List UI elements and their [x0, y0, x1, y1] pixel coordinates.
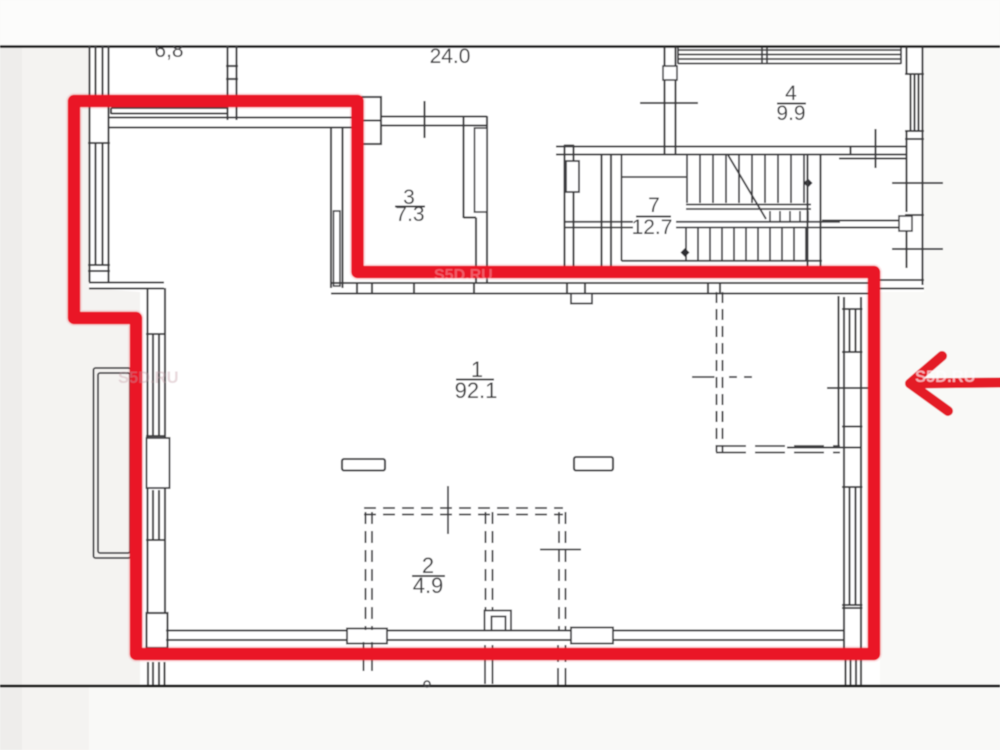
svg-text:4.9: 4.9	[413, 573, 444, 598]
svg-text:9.9: 9.9	[776, 102, 805, 125]
svg-text:7.3: 7.3	[395, 203, 424, 226]
svg-text:S5D.RU: S5D.RU	[915, 368, 976, 386]
svg-text:7: 7	[648, 194, 660, 217]
svg-text:S5D.RU: S5D.RU	[434, 267, 493, 284]
svg-text:24.0: 24.0	[430, 45, 471, 68]
svg-text:12.7: 12.7	[632, 216, 673, 239]
svg-text:S5D.RU: S5D.RU	[118, 369, 179, 387]
svg-text:92.1: 92.1	[455, 378, 498, 403]
